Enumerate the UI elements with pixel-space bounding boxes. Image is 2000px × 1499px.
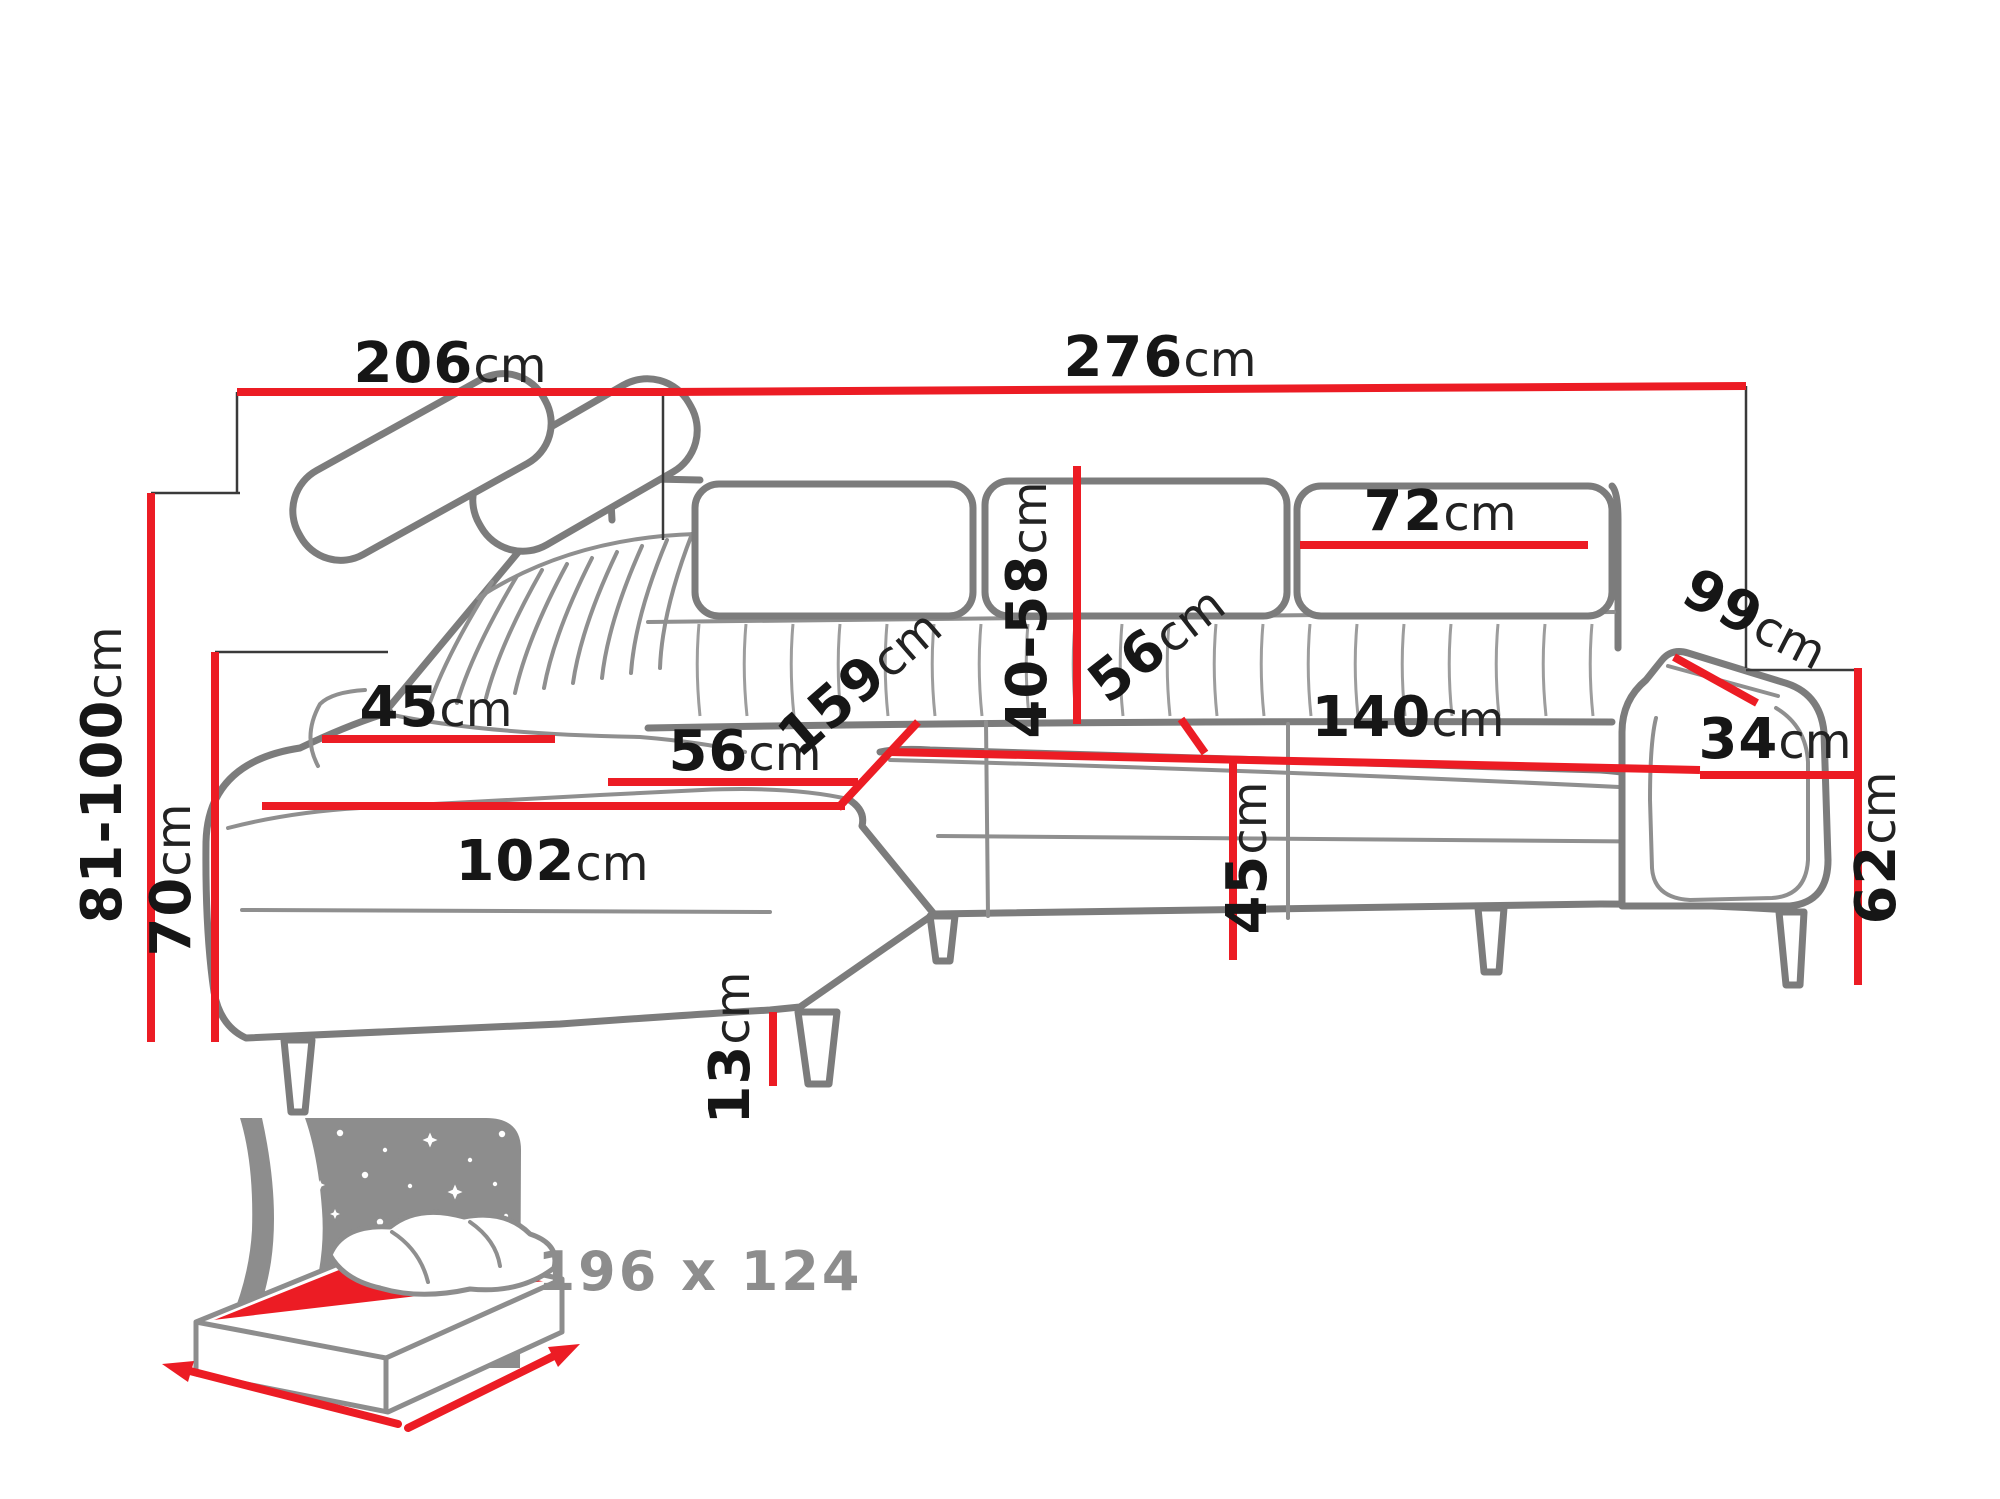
dim-label-45-left: 45cm [359, 675, 512, 740]
chaise-front-seam [242, 910, 770, 912]
star-icon [337, 1130, 343, 1136]
dim-label-81-100: 81-100cm [70, 626, 135, 923]
dim-label-102: 102cm [455, 829, 648, 894]
dim-line-159 [838, 722, 918, 808]
sofa-body-outline [206, 712, 1788, 1038]
decorative-line [602, 546, 642, 678]
dim-label-140: 140cm [1311, 685, 1504, 750]
dimension-diagram: 206cm 276cm 81-100cm 70cm 45cm 102cm 56c… [0, 0, 2000, 1499]
dim-label-40-58: 40-58cm [995, 481, 1060, 738]
star-icon [408, 1184, 412, 1188]
star-icon [493, 1182, 497, 1186]
decorative-line [1261, 624, 1264, 716]
decorative-line [744, 624, 747, 716]
arrowhead-icon [162, 1361, 194, 1382]
dim-label-34: 34cm [1698, 707, 1851, 772]
star-icon [307, 1253, 313, 1259]
leg-icon [1478, 908, 1504, 972]
base-seam-right [938, 836, 1700, 842]
leg-icon [798, 1012, 837, 1084]
leg-icon [930, 916, 955, 961]
decorative-line [1214, 624, 1217, 716]
star-icon [289, 1219, 295, 1225]
sofa-diagram-svg: 206cm 276cm 81-100cm 70cm 45cm 102cm 56c… [0, 0, 2000, 1499]
dim-label-13: 13cm [698, 971, 763, 1124]
decorative-line [544, 558, 592, 688]
sleeping-area-icon: 196 x 124 [162, 1118, 862, 1428]
arrowhead-icon [548, 1344, 580, 1367]
dim-label-206: 206cm [353, 331, 546, 396]
leg-icon [284, 1040, 312, 1112]
decorative-line [1590, 624, 1593, 716]
dim-label-70: 70cm [139, 803, 204, 956]
star-icon [499, 1131, 505, 1137]
star-icon [295, 1145, 305, 1155]
dim-label-45-right: 45cm [1215, 781, 1280, 934]
corner-seat-edge [848, 799, 934, 914]
dim-label-62: 62cm [1844, 771, 1909, 924]
dim-label-72: 72cm [1363, 479, 1516, 544]
sofa-legs [284, 908, 1804, 1112]
decorative-line [697, 624, 700, 716]
dim-line-140 [890, 752, 1700, 770]
star-icon [468, 1158, 472, 1162]
decorative-line [573, 552, 617, 683]
leg-icon [1779, 912, 1804, 985]
dim-label-276: 276cm [1063, 325, 1256, 390]
decorative-line [660, 534, 692, 668]
star-icon [383, 1148, 387, 1152]
decorative-line [979, 624, 982, 716]
headrest-cushion-left [695, 484, 973, 616]
sleeping-area-label: 196 x 124 [538, 1240, 863, 1303]
star-icon [362, 1172, 368, 1178]
decorative-line [1543, 624, 1546, 716]
